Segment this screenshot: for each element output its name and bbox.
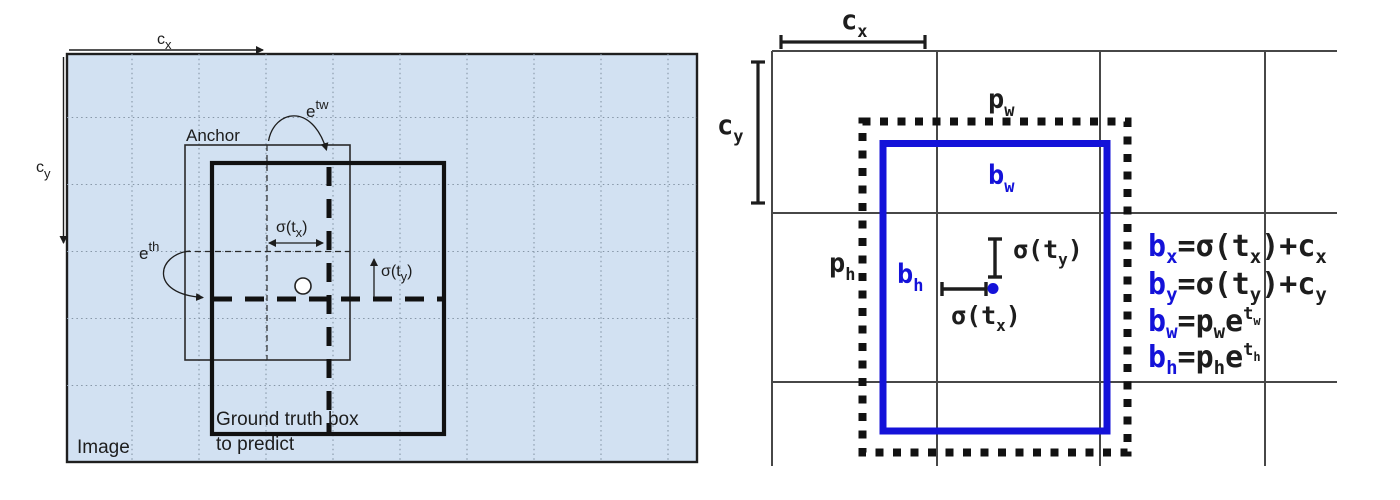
ground-truth-caption-line1: Ground truth box	[216, 409, 359, 430]
image-label: Image	[77, 437, 130, 458]
right-panel: cx cy pw bw ph bh σ(ty) σ(tx)	[717, 5, 1337, 466]
ground-truth-caption-line2: to predict	[216, 434, 295, 455]
equation-bx: bx=σ(tx)+cx	[1148, 229, 1327, 268]
sigma-tx-label: σ(tx)	[951, 301, 1021, 335]
anchor-center-point	[295, 278, 311, 294]
anchor-label: Anchor	[186, 126, 240, 145]
bw-label: bw	[988, 160, 1015, 197]
cx-label: cx	[157, 31, 172, 52]
equation-by: by=σ(ty)+cy	[1148, 267, 1327, 306]
cx-dimension	[781, 35, 925, 49]
left-panel: cx cy Anchor etw eth σ(tx) σ(ty) Ground …	[36, 31, 697, 462]
cx-label: cx	[841, 5, 868, 42]
figure-canvas: cx cy Anchor etw eth σ(tx) σ(ty) Ground …	[0, 0, 1400, 500]
box-center-point	[988, 283, 999, 294]
pw-label: pw	[988, 84, 1015, 121]
bounding-box-diagram: cx cy Anchor etw eth σ(tx) σ(ty) Ground …	[0, 0, 1400, 500]
equation-bh: bh=pheth	[1148, 340, 1261, 379]
sigma-tx-dimension	[942, 282, 986, 296]
cy-label: cy	[36, 159, 51, 181]
bh-label: bh	[897, 259, 924, 296]
equation-bw: bw=pwetw	[1148, 304, 1261, 343]
cy-label: cy	[717, 110, 744, 147]
image-region	[67, 54, 697, 462]
ph-label: ph	[829, 248, 856, 285]
sigma-ty-dimension	[988, 239, 1002, 277]
equations: bx=σ(tx)+cx by=σ(ty)+cy bw=pwetw bh=phet…	[1148, 229, 1327, 379]
cy-dimension	[751, 62, 765, 203]
sigma-ty-label: σ(ty)	[1013, 235, 1083, 269]
